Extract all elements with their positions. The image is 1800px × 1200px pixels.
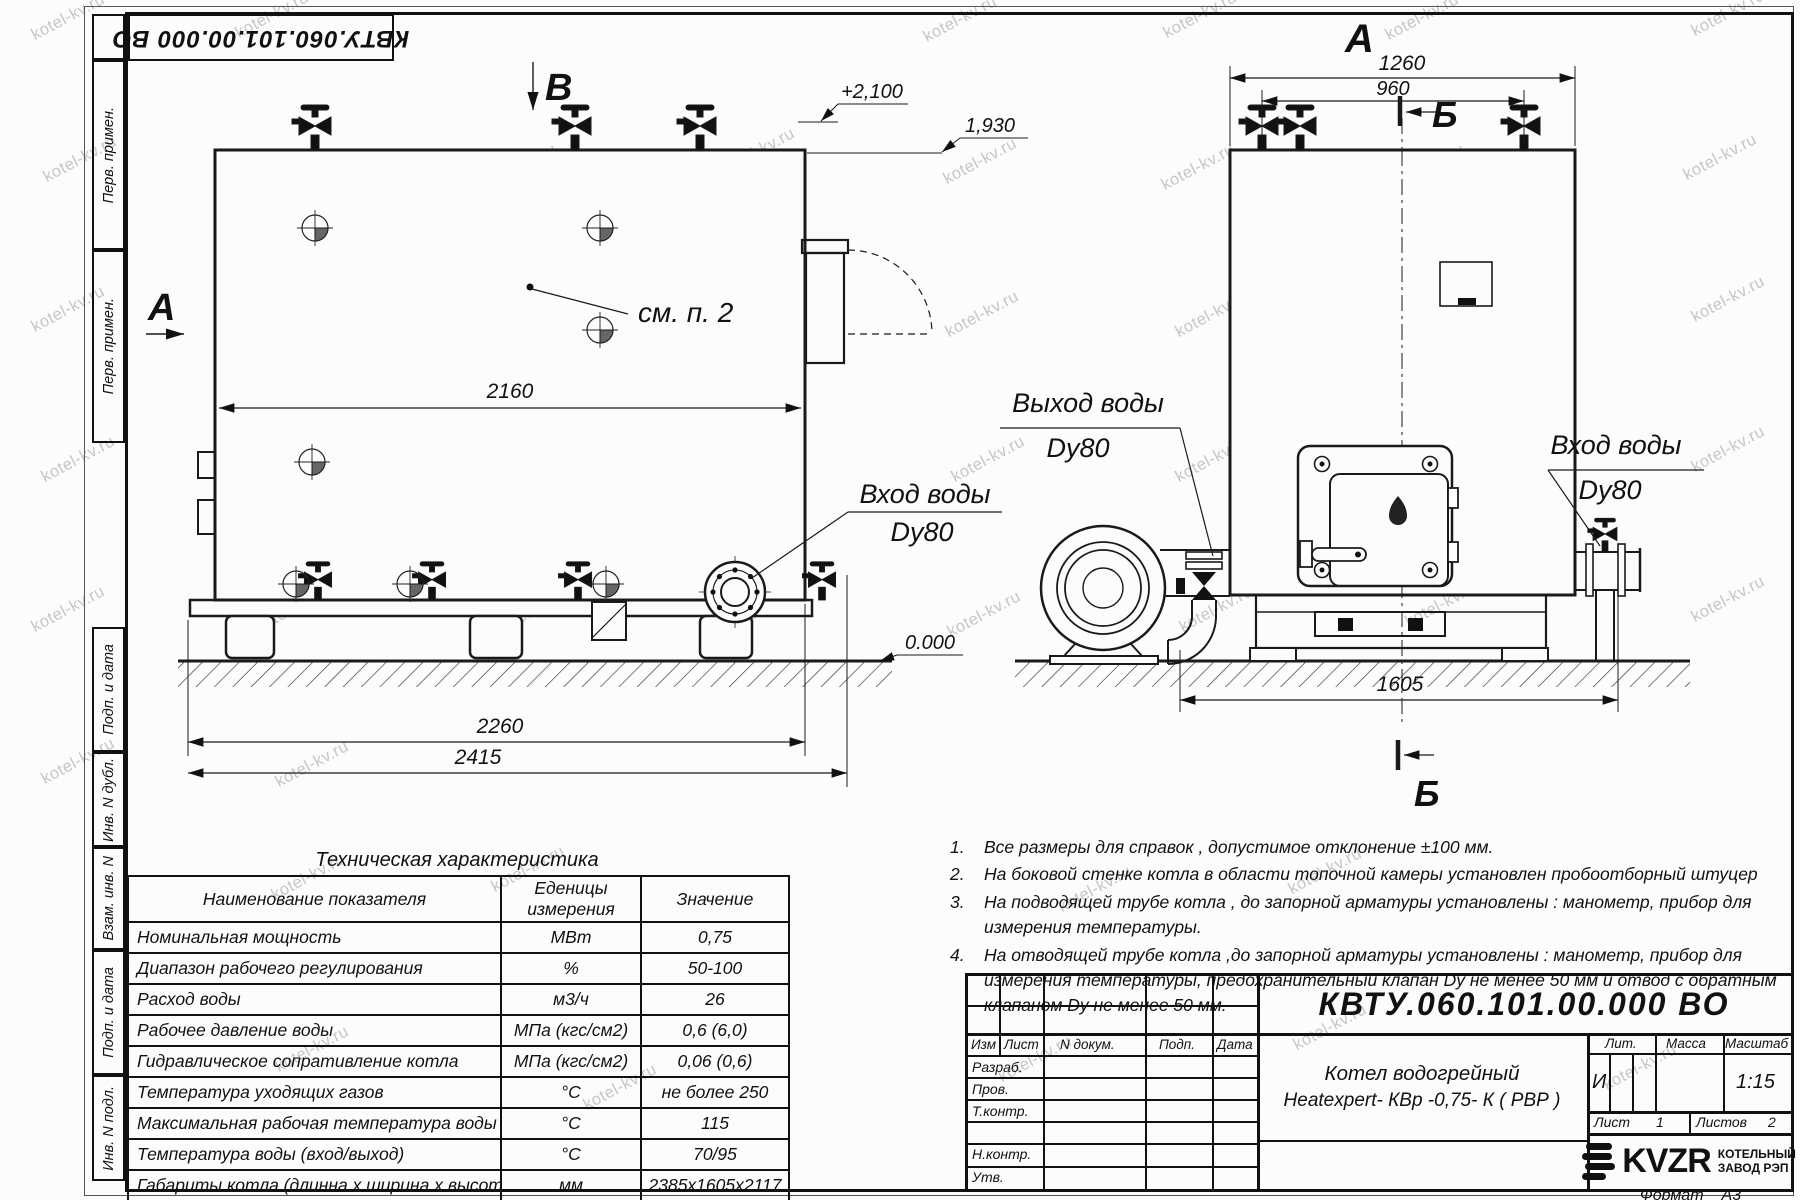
grid-line: [1587, 1053, 1791, 1055]
svg-text:2415: 2415: [454, 746, 502, 769]
section-mark-b-bottom: Б: [1398, 740, 1440, 814]
boiler-body-side: [215, 150, 805, 600]
svg-text:Вход воды: Вход воды: [1550, 430, 1681, 460]
wall-bracket: [198, 500, 215, 534]
title-block: Изм Лист N докум. Подп. Дата Разраб. Про…: [965, 973, 1794, 1192]
grid-line: [968, 1055, 1257, 1057]
svg-text:Dy80: Dy80: [1578, 475, 1641, 505]
spec-table-title: Техническая характеристика: [127, 849, 787, 872]
col-header-units: Еденицыизмерения: [501, 876, 641, 922]
strip-podp-data-2: Подп. и дата: [92, 950, 125, 1075]
table-row: Номинальная мощностьМВт0,75: [128, 922, 789, 953]
inlet-pipe-assembly: [1575, 544, 1640, 660]
row-prov: Пров.: [972, 1081, 1009, 1097]
sheets-label: Листов: [1696, 1114, 1747, 1130]
sheet-label: Лист: [1594, 1114, 1630, 1130]
svg-text:Вход воды: Вход воды: [859, 479, 990, 509]
table-row: Расход водым3/ч26: [128, 984, 789, 1015]
elevation-mark-zero: 0.000: [880, 632, 963, 661]
row-nkontr: Н.контр.: [972, 1146, 1031, 1162]
grid-line: [1145, 976, 1147, 1189]
svg-text:0.000: 0.000: [905, 632, 955, 654]
svg-text:Выход воды: Выход воды: [1012, 388, 1164, 418]
table-row: Максимальная рабочая температура воды°С1…: [128, 1108, 789, 1139]
elevation-mark-2100: +2,100: [798, 81, 908, 122]
svg-text:Dy80: Dy80: [1046, 433, 1109, 463]
col-header-name: Наименование показателя: [128, 876, 501, 922]
kvzr-logo-icon: [1582, 1143, 1615, 1180]
table-row: Гидравлическое сопративление котлаМПа (к…: [128, 1046, 789, 1077]
company-name: КОТЕЛЬНЫЙ ЗАВОД РЭП: [1718, 1147, 1796, 1176]
document-designation: КВТУ.060.101.00.000 ВО: [1257, 976, 1791, 1033]
flue-outlet: [802, 240, 932, 363]
grid-line: [1257, 1140, 1587, 1142]
svg-text:Б: Б: [1432, 94, 1458, 135]
ground-hatch-left: [178, 661, 892, 687]
document-name: Котел водогрейный Heatexpert- КВр -0,75-…: [1257, 1033, 1587, 1140]
svg-text:А: А: [147, 287, 175, 329]
valve-icon: [552, 105, 591, 150]
strip-inv-podl: Инв. N подл.: [92, 1075, 125, 1181]
sheet-value: 1: [1656, 1114, 1664, 1130]
grid-line: [1689, 1111, 1691, 1133]
grid-line: [968, 1166, 1257, 1168]
outlet-pipe-assembly: [1168, 552, 1222, 664]
col-header-value: Значение: [641, 876, 789, 922]
note-item: 1.Все размеры для справок , допустимое о…: [950, 835, 1792, 860]
svg-text:1260: 1260: [1379, 52, 1426, 75]
door-handle-bracket: [1300, 541, 1312, 567]
wall-bracket: [198, 452, 215, 478]
svg-text:+2,100: +2,100: [841, 81, 903, 103]
grid-line: [999, 976, 1001, 1055]
valve-icon: [1277, 105, 1316, 150]
view-label-a: А: [1344, 17, 1374, 61]
svg-text:960: 960: [1376, 78, 1409, 100]
valve-icon: [677, 105, 716, 150]
note-item: 2.На боковой стенке котла в области топо…: [950, 862, 1792, 887]
row-razrab: Разраб.: [972, 1059, 1023, 1075]
scale-label: Масштаб: [1725, 1036, 1788, 1051]
grid-line: [1632, 1053, 1634, 1111]
boiler-front-view: Выход воды Dy80 Вход воды Dy80: [1000, 17, 1704, 814]
scale-value: 1:15: [1736, 1071, 1775, 1094]
grid-line: [1212, 976, 1214, 1189]
boiler-drawing-canvas: 2160: [0, 0, 1800, 840]
grid-line: [1043, 976, 1045, 1189]
col-ndokum: N докум.: [1060, 1037, 1115, 1052]
section-mark-a-left: А: [146, 287, 184, 334]
company-logo: KVZR КОТЕЛЬНЫЙ ЗАВОД РЭП: [1587, 1133, 1791, 1189]
grid-line: [1609, 1053, 1611, 1111]
table-header-row: Наименование показателя Еденицыизмерения…: [128, 876, 789, 922]
row-tkontr: Т.контр.: [972, 1103, 1028, 1119]
svg-text:2160: 2160: [486, 380, 534, 403]
svg-text:1605: 1605: [1377, 673, 1424, 696]
grid-line: [968, 1077, 1257, 1079]
valve-icon: [292, 105, 331, 150]
svg-text:2260: 2260: [476, 715, 524, 738]
grid-line: [968, 1099, 1257, 1101]
col-data: Дата: [1217, 1037, 1253, 1052]
valve-icon: [802, 562, 835, 600]
svg-text:1,930: 1,930: [965, 115, 1015, 137]
table-row: Рабочее давление водыМПа (кгс/см2)0,6 (6…: [128, 1015, 789, 1046]
lit-label: Лит.: [1605, 1036, 1637, 1051]
svg-text:см. п. 2: см. п. 2: [638, 297, 734, 328]
valve-icon: [1501, 105, 1540, 150]
svg-text:Dy80: Dy80: [890, 517, 953, 547]
valve-icon: [1239, 105, 1278, 150]
col-izm: Изм: [971, 1037, 996, 1052]
elevation-mark-1930: 1,930: [807, 115, 1028, 153]
format-label: Формат А3: [1640, 1187, 1790, 1200]
section-mark-b-top: Б: [1400, 94, 1458, 135]
table-row: Диапазон рабочего регулирования%50-100: [128, 953, 789, 984]
drawing-sheet: kotel-kv.ru kotel-kv.ru kotel-kv.ru kote…: [0, 0, 1800, 1200]
grid-line: [968, 1005, 1257, 1007]
grid-line: [968, 1121, 1257, 1123]
svg-text:В: В: [545, 67, 572, 109]
strip-vzam-inv: Взам. инв. N: [92, 847, 125, 950]
row-utv: Утв.: [972, 1169, 1004, 1185]
kvzr-logo-text: KVZR: [1622, 1142, 1711, 1181]
col-list: Лист: [1004, 1037, 1039, 1052]
table-row: Температура уходящих газов°Сне более 250: [128, 1077, 789, 1108]
lit-value: И: [1592, 1071, 1606, 1094]
svg-text:Б: Б: [1414, 773, 1440, 814]
note-item: 3.На подводящей трубе котла , до запорно…: [950, 890, 1792, 941]
table-row: Габариты котла (длинна х ширина х высота…: [128, 1170, 789, 1200]
mass-label: Масса: [1666, 1036, 1706, 1051]
inspection-door: [1298, 446, 1458, 586]
sheets-value: 2: [1768, 1114, 1776, 1130]
dim-1605: 1605: [1180, 596, 1618, 712]
section-mark-v: В: [533, 62, 572, 110]
table-row: Температура воды (вход/выход)°С70/95: [128, 1139, 789, 1170]
col-podp: Подп.: [1159, 1037, 1195, 1052]
grid-line: [1655, 1033, 1657, 1111]
spec-table: Наименование показателя Еденицыизмерения…: [127, 875, 790, 1200]
front-base: [1250, 595, 1548, 661]
boiler-side-view: 2160: [146, 62, 1028, 787]
